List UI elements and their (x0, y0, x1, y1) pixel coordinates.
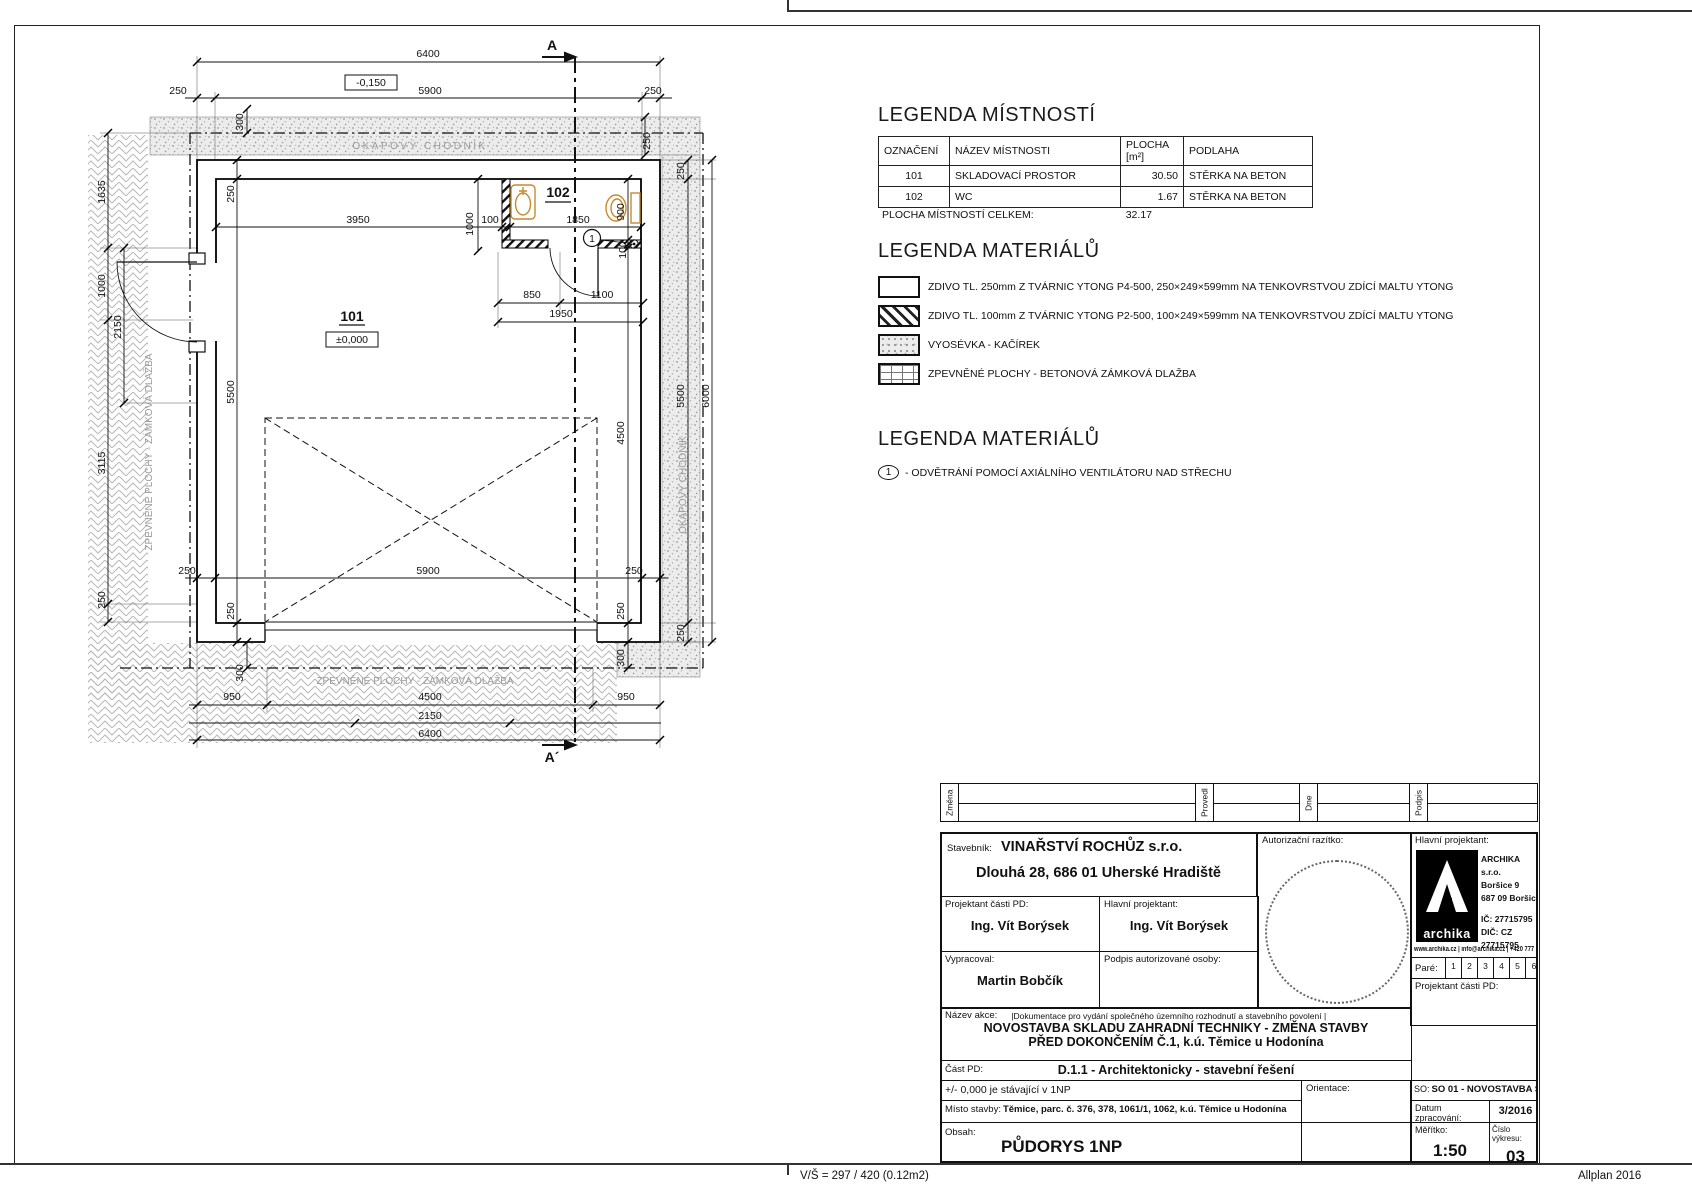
vypracoval-name: Martin Bobčík (941, 973, 1099, 988)
razitko-cell: Autorizační razítko: (1257, 832, 1412, 1009)
total-label: PLOCHA MÍSTNOSTÍ CELKEM: (882, 209, 1110, 221)
plan-label: 1100 (591, 289, 614, 301)
hlavni-projektant-name: Ing. Vít Borýsek (1100, 918, 1258, 933)
list-item: ZDIVO TL. 250mm Z TVÁRNIC YTONG P4-500, … (878, 275, 1453, 299)
datum-value: 3/2016 (1490, 1105, 1538, 1117)
plan-label: 250 (96, 591, 108, 609)
list-item: ZPEVNĚNÉ PLOCHY - BETONOVÁ ZÁMKOVÁ DLAŽB… (878, 362, 1453, 386)
plan-label: 950 (223, 691, 241, 703)
so-label: SO: (1414, 1084, 1430, 1095)
legend-rooms-total: PLOCHA MÍSTNOSTÍ CELKEM: 32.17 (882, 209, 1222, 221)
room-floor: STĚRKA NA BETON (1184, 166, 1313, 187)
plan-label: 250 (641, 132, 653, 150)
plan-label: 250 (225, 602, 237, 620)
misto-value: Těmice, parc. č. 376, 378, 1061/1, 1062,… (1003, 1104, 1287, 1115)
hlavni-projektant-cell: Hlavní projektant: Ing. Vít Borýsek (1099, 896, 1259, 952)
list-item: ZDIVO TL. 100mm Z TVÁRNIC YTONG P2-500, … (878, 304, 1453, 328)
page-edge-bottom-line (0, 1163, 1692, 1165)
paving-herringbone-left (88, 135, 148, 700)
plan-label: 101 (340, 308, 364, 324)
swatch-pavers-icon (878, 363, 920, 385)
sink (511, 185, 535, 219)
gate-clearance-dashed-box (265, 418, 597, 622)
plan-label: 100 (617, 241, 629, 259)
stavebnik-name: VINAŘSTVÍ ROCHŮZ s.r.o. (1001, 839, 1251, 855)
cislo-cell: Číslo výkresu: 03 (1489, 1122, 1538, 1163)
archika-logo-A-icon (1416, 850, 1478, 924)
plan-label: 5500 (225, 380, 237, 404)
room-area: 30.50 (1121, 166, 1184, 187)
gravel-band-corner (617, 642, 700, 677)
legend-materials-list: ZDIVO TL. 250mm Z TVÁRNIC YTONG P4-500, … (878, 275, 1453, 391)
plan-label: 900 (615, 203, 627, 221)
meritko-label: Měřítko: (1411, 1123, 1489, 1135)
plan-label: 5500 (675, 384, 687, 408)
nazev-akce-line2: PŘED DOKONČENÍM Č.1, k.ú. Těmice u Hodon… (941, 1035, 1411, 1049)
page-footer-format: V/Š = 297 / 420 (0.12m2) (800, 1170, 929, 1182)
plan-label: 250 (625, 565, 643, 577)
orientace-label: Orientace: (1302, 1081, 1411, 1094)
plan-label: 250 (615, 602, 627, 620)
pare-4: 4 (1493, 957, 1510, 979)
plan-label: 950 (617, 691, 635, 703)
cast-pd-value: D.1.1 - Architektonicky - stavební řešen… (941, 1063, 1411, 1077)
proj-casti-label: Projektant části PD: (1411, 979, 1538, 992)
plan-label: 1000 (96, 274, 108, 298)
meritko-value: 1:50 (1411, 1141, 1489, 1161)
projektant-casti-cell: Projektant části PD: Ing. Vít Borýsek (940, 896, 1100, 952)
nazev-akce-line1: NOVOSTAVBA SKLADU ZAHRADNÍ TECHNIKY - ZM… (941, 1021, 1411, 1035)
legend-rooms-table: OZNAČENÍ NÁZEV MÍSTNOSTI PLOCHA [m²] POD… (878, 136, 1313, 208)
material-label: ZDIVO TL. 250mm Z TVÁRNIC YTONG P4-500, … (928, 281, 1453, 293)
archika-logo-text: archika (1416, 927, 1478, 941)
col-header: NÁZEV MÍSTNOSTI (950, 137, 1121, 166)
plan-label: 1 (589, 234, 595, 245)
cislo-label: Číslo výkresu: (1490, 1123, 1538, 1143)
title-block-main: Stavebník: VINAŘSTVÍ ROCHŮZ s.r.o. Dlouh… (940, 832, 1538, 1163)
blank-cell (1301, 1122, 1412, 1163)
legend-notes-title: LEGENDA MATERIÁLŮ (878, 428, 1100, 451)
plan-label: 5900 (418, 85, 442, 97)
table-row: 102 WC 1.67 STĚRKA NA BETON (879, 187, 1313, 208)
pare-2: 2 (1461, 957, 1478, 979)
col-header: PLOCHA [m²] (1121, 137, 1184, 166)
page-edge-b-tick (787, 1163, 789, 1175)
revision-zmena-label: Změna (941, 784, 958, 822)
misto-stavby-cell: Místo stavby: Těmice, parc. č. 376, 378,… (940, 1100, 1302, 1123)
plan-label: ZPEVNĚNÉ PLOCHY - ZÁMKOVÁ DLAŽBA (142, 353, 155, 550)
podpis-label: Podpis autorizované osoby: (1100, 952, 1258, 965)
paving-herringbone-bottom (88, 643, 617, 743)
vypracoval-cell: Vypracoval: Martin Bobčík (940, 951, 1100, 1009)
plan-label: A´ (545, 749, 560, 765)
archika-addr2: 687 09 Boršice (1481, 892, 1538, 905)
plan-label: 102 (546, 184, 570, 200)
drawing-title: PŮDORYS 1NP (1001, 1137, 1122, 1157)
plan-label: 250 (675, 162, 687, 180)
plan-label: -0,150 (356, 77, 386, 89)
plan-label: 6000 (700, 384, 712, 408)
room-area: 1.67 (1121, 187, 1184, 208)
datum-value-cell: 3/2016 (1489, 1100, 1538, 1123)
plan-label: 6400 (418, 728, 442, 740)
note-000: +/- 0,000 je stávající v 1NP (941, 1081, 1301, 1096)
revision-dne-label: Dne (1300, 784, 1317, 822)
proj-casti-cell: Projektant části PD: (1410, 978, 1538, 1026)
material-label: VYOSÉVKA - KAČÍREK (928, 339, 1040, 351)
pare-3: 3 (1477, 957, 1494, 979)
hlavni-projektant-label: Hlavní projektant: (1100, 897, 1258, 910)
level-label-boxes (326, 75, 397, 347)
paving-areas (88, 117, 700, 743)
pare-6: 6 (1525, 957, 1538, 979)
plan-label: 3950 (346, 214, 370, 226)
plan-label: 4500 (418, 691, 442, 703)
so-value: SO 01 - NOVOSTAVBA SKLADU (1432, 1084, 1538, 1095)
obsah-cell: Obsah: PŮDORYS 1NP (940, 1122, 1302, 1163)
page-footer-app: Allplan 2016 (1578, 1170, 1641, 1182)
page-edge-top-line (787, 10, 1692, 12)
room-number-underlines (339, 202, 571, 325)
stamp-circle (1265, 860, 1409, 1004)
plan-label: 1635 (96, 180, 108, 204)
revision-strip: Změna Provedl Dne Podpis (940, 783, 1538, 822)
swatch-solid-wall-icon (878, 276, 920, 298)
floor-plan-drawing: 64002505900250-0,150AA´300250OKAPOVÝ CHO… (80, 30, 760, 770)
plan-label: 300 (234, 664, 246, 682)
razitko-label: Autorizační razítko: (1258, 833, 1411, 846)
plan-label: OKAPOVÝ CHODNÍK (676, 436, 689, 534)
room-floor: STĚRKA NA BETON (1184, 187, 1313, 208)
archika-hlavni-label: Hlavní projektant: (1411, 833, 1538, 846)
plan-label: 2150 (112, 315, 124, 339)
datum-cell: Datum zpracování: (1410, 1100, 1490, 1123)
plan-label: 850 (523, 289, 541, 301)
material-label: ZDIVO TL. 100mm Z TVÁRNIC YTONG P2-500, … (928, 310, 1453, 322)
stavebnik-label: Stavebník: (943, 841, 992, 854)
archika-cell: Hlavní projektant: archika ARCHIKA s.r.o… (1410, 832, 1538, 1026)
plan-label: 250 (675, 624, 687, 642)
plan-label: 5900 (416, 565, 440, 577)
pare-1: 1 (1445, 957, 1462, 979)
cislo-value: 03 (1490, 1147, 1538, 1163)
plan-label: ±0,000 (336, 334, 368, 346)
plan-label: 6400 (416, 48, 440, 60)
so-cell: SO: SO 01 - NOVOSTAVBA SKLADU (1410, 1080, 1538, 1101)
plan-label: 250 (225, 185, 237, 203)
plan-label: OKAPOVÝ CHODNÍK (352, 139, 487, 152)
stavebnik-cell: Stavebník: VINAŘSTVÍ ROCHŮZ s.r.o. Dlouh… (940, 832, 1257, 897)
room-name: SKLADOVACÍ PROSTOR (950, 166, 1121, 187)
datum-label: Datum zpracování: (1411, 1101, 1489, 1123)
archika-logo: archika (1416, 850, 1478, 942)
plan-label: 1000 (464, 212, 476, 236)
plan-label: 300 (234, 113, 246, 131)
room-id: 101 (879, 166, 950, 187)
plan-label: 2150 (418, 710, 442, 722)
archika-name: ARCHIKA s.r.o. (1481, 853, 1538, 879)
orientace-cell: Orientace: (1301, 1080, 1412, 1123)
door-opening-left (193, 263, 219, 341)
nazev-akce-label: Název akce: (945, 1010, 997, 1021)
gate-leaf (265, 622, 597, 630)
obsah-label: Obsah: (941, 1125, 976, 1138)
plan-label: ZPEVNĚNÉ PLOCHY - ZÁMKOVÁ DLAŽBA (316, 674, 513, 687)
swatch-hatch-wall-icon (878, 305, 920, 327)
plan-label: 1850 (566, 214, 590, 226)
misto-label: Místo stavby: (945, 1104, 1001, 1115)
podpis-cell: Podpis autorizované osoby: (1099, 951, 1259, 1009)
list-item: VYOSÉVKA - KAČÍREK (878, 333, 1453, 357)
pare-row: Paré: 1 2 3 4 5 6 (1410, 957, 1538, 979)
archika-web: www.archika.cz | info@archika.cz | +420 … (1414, 946, 1538, 953)
nazev-akce-note: |Dokumentace pro vydání společného územn… (1011, 1010, 1326, 1021)
pare-5: 5 (1509, 957, 1526, 979)
plan-label: 4500 (615, 421, 627, 445)
vent-note-circle-icon: 1 (878, 465, 899, 480)
door-jamb (189, 341, 205, 352)
meritko-cell: Měřítko: 1:50 (1410, 1122, 1490, 1163)
projektant-casti-label: Projektant části PD: (941, 897, 1099, 910)
legend-materials-title: LEGENDA MATERIÁLŮ (878, 240, 1100, 263)
plan-label: A (547, 37, 557, 53)
col-header: PODLAHA (1184, 137, 1313, 166)
title-block: Změna Provedl Dne Podpis Stavebník: VINA… (940, 783, 1538, 1163)
cast-pd-cell: Část PD: D.1.1 - Architektonicky - stave… (940, 1060, 1412, 1081)
revision-podpis-label: Podpis (1410, 784, 1427, 822)
total-value: 32.17 (1110, 209, 1152, 221)
note-000-cell: +/- 0,000 je stávající v 1NP (940, 1080, 1302, 1101)
revision-provedl-label: Provedl (1196, 784, 1213, 822)
plan-label: 3115 (96, 452, 108, 475)
nazev-akce-cell: Název akce: |Dokumentace pro vydání spol… (940, 1007, 1412, 1061)
cast-pd-label: Část PD: (941, 1062, 983, 1075)
archika-addr1: Boršice 9 (1481, 879, 1538, 892)
room-name: WC (950, 187, 1121, 208)
note-label: - ODVĚTRÁNÍ POMOCÍ AXIÁLNÍHO VENTILÁTORU… (905, 467, 1232, 479)
stavebnik-address: Dlouhá 28, 686 01 Uherské Hradiště (941, 865, 1256, 881)
plan-label: 250 (178, 565, 196, 577)
legend-rooms-title: LEGENDA MÍSTNOSTÍ (878, 104, 1095, 127)
material-label: ZPEVNĚNÉ PLOCHY - BETONOVÁ ZÁMKOVÁ DLAŽB… (928, 368, 1196, 380)
swatch-gravel-icon (878, 334, 920, 356)
plan-label: 300 (615, 649, 627, 667)
col-header: OZNAČENÍ (879, 137, 950, 166)
projektant-casti-name: Ing. Vít Borýsek (941, 918, 1099, 933)
archika-ic: IČ: 27715795 (1481, 913, 1538, 926)
room-id: 102 (879, 187, 950, 208)
plan-label: 250 (644, 85, 662, 97)
legend-notes-item: 1 - ODVĚTRÁNÍ POMOCÍ AXIÁLNÍHO VENTILÁTO… (878, 465, 1232, 480)
pare-label: Paré: (1411, 961, 1438, 974)
table-row: 101 SKLADOVACÍ PROSTOR 30.50 STĚRKA NA B… (879, 166, 1313, 187)
vypracoval-label: Vypracoval: (941, 952, 1099, 965)
plan-label: 1950 (549, 308, 573, 320)
plan-label: 100 (481, 214, 499, 226)
plan-label: 250 (169, 85, 187, 97)
